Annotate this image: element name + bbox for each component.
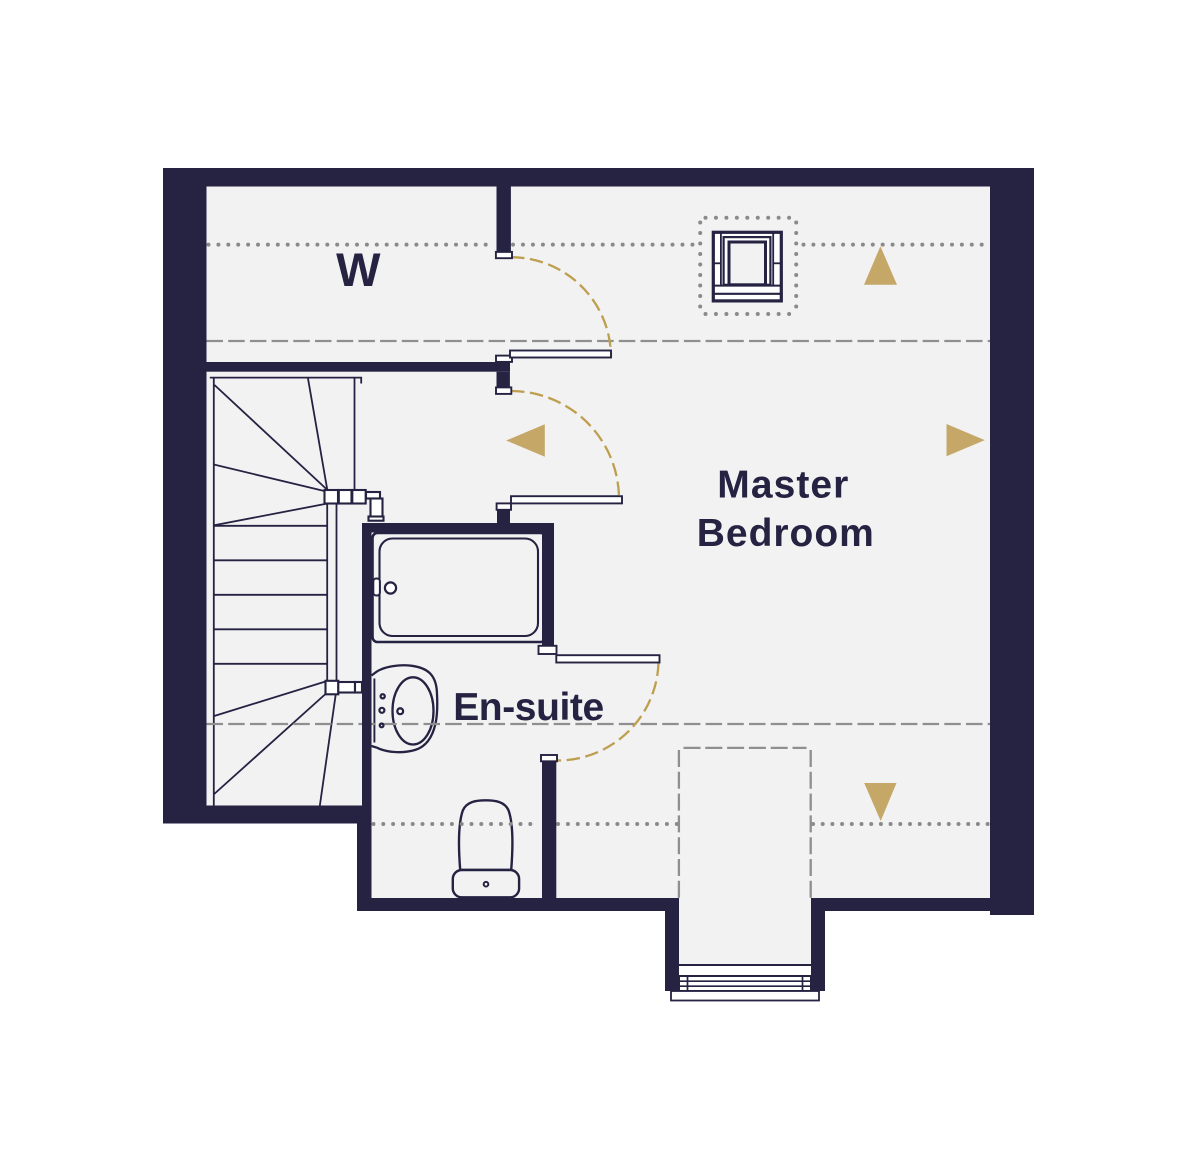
svg-text:Bedroom: Bedroom bbox=[697, 512, 874, 555]
svg-text:En-suite: En-suite bbox=[453, 686, 604, 729]
svg-text:Master: Master bbox=[717, 463, 848, 506]
svg-text:W: W bbox=[336, 243, 381, 296]
